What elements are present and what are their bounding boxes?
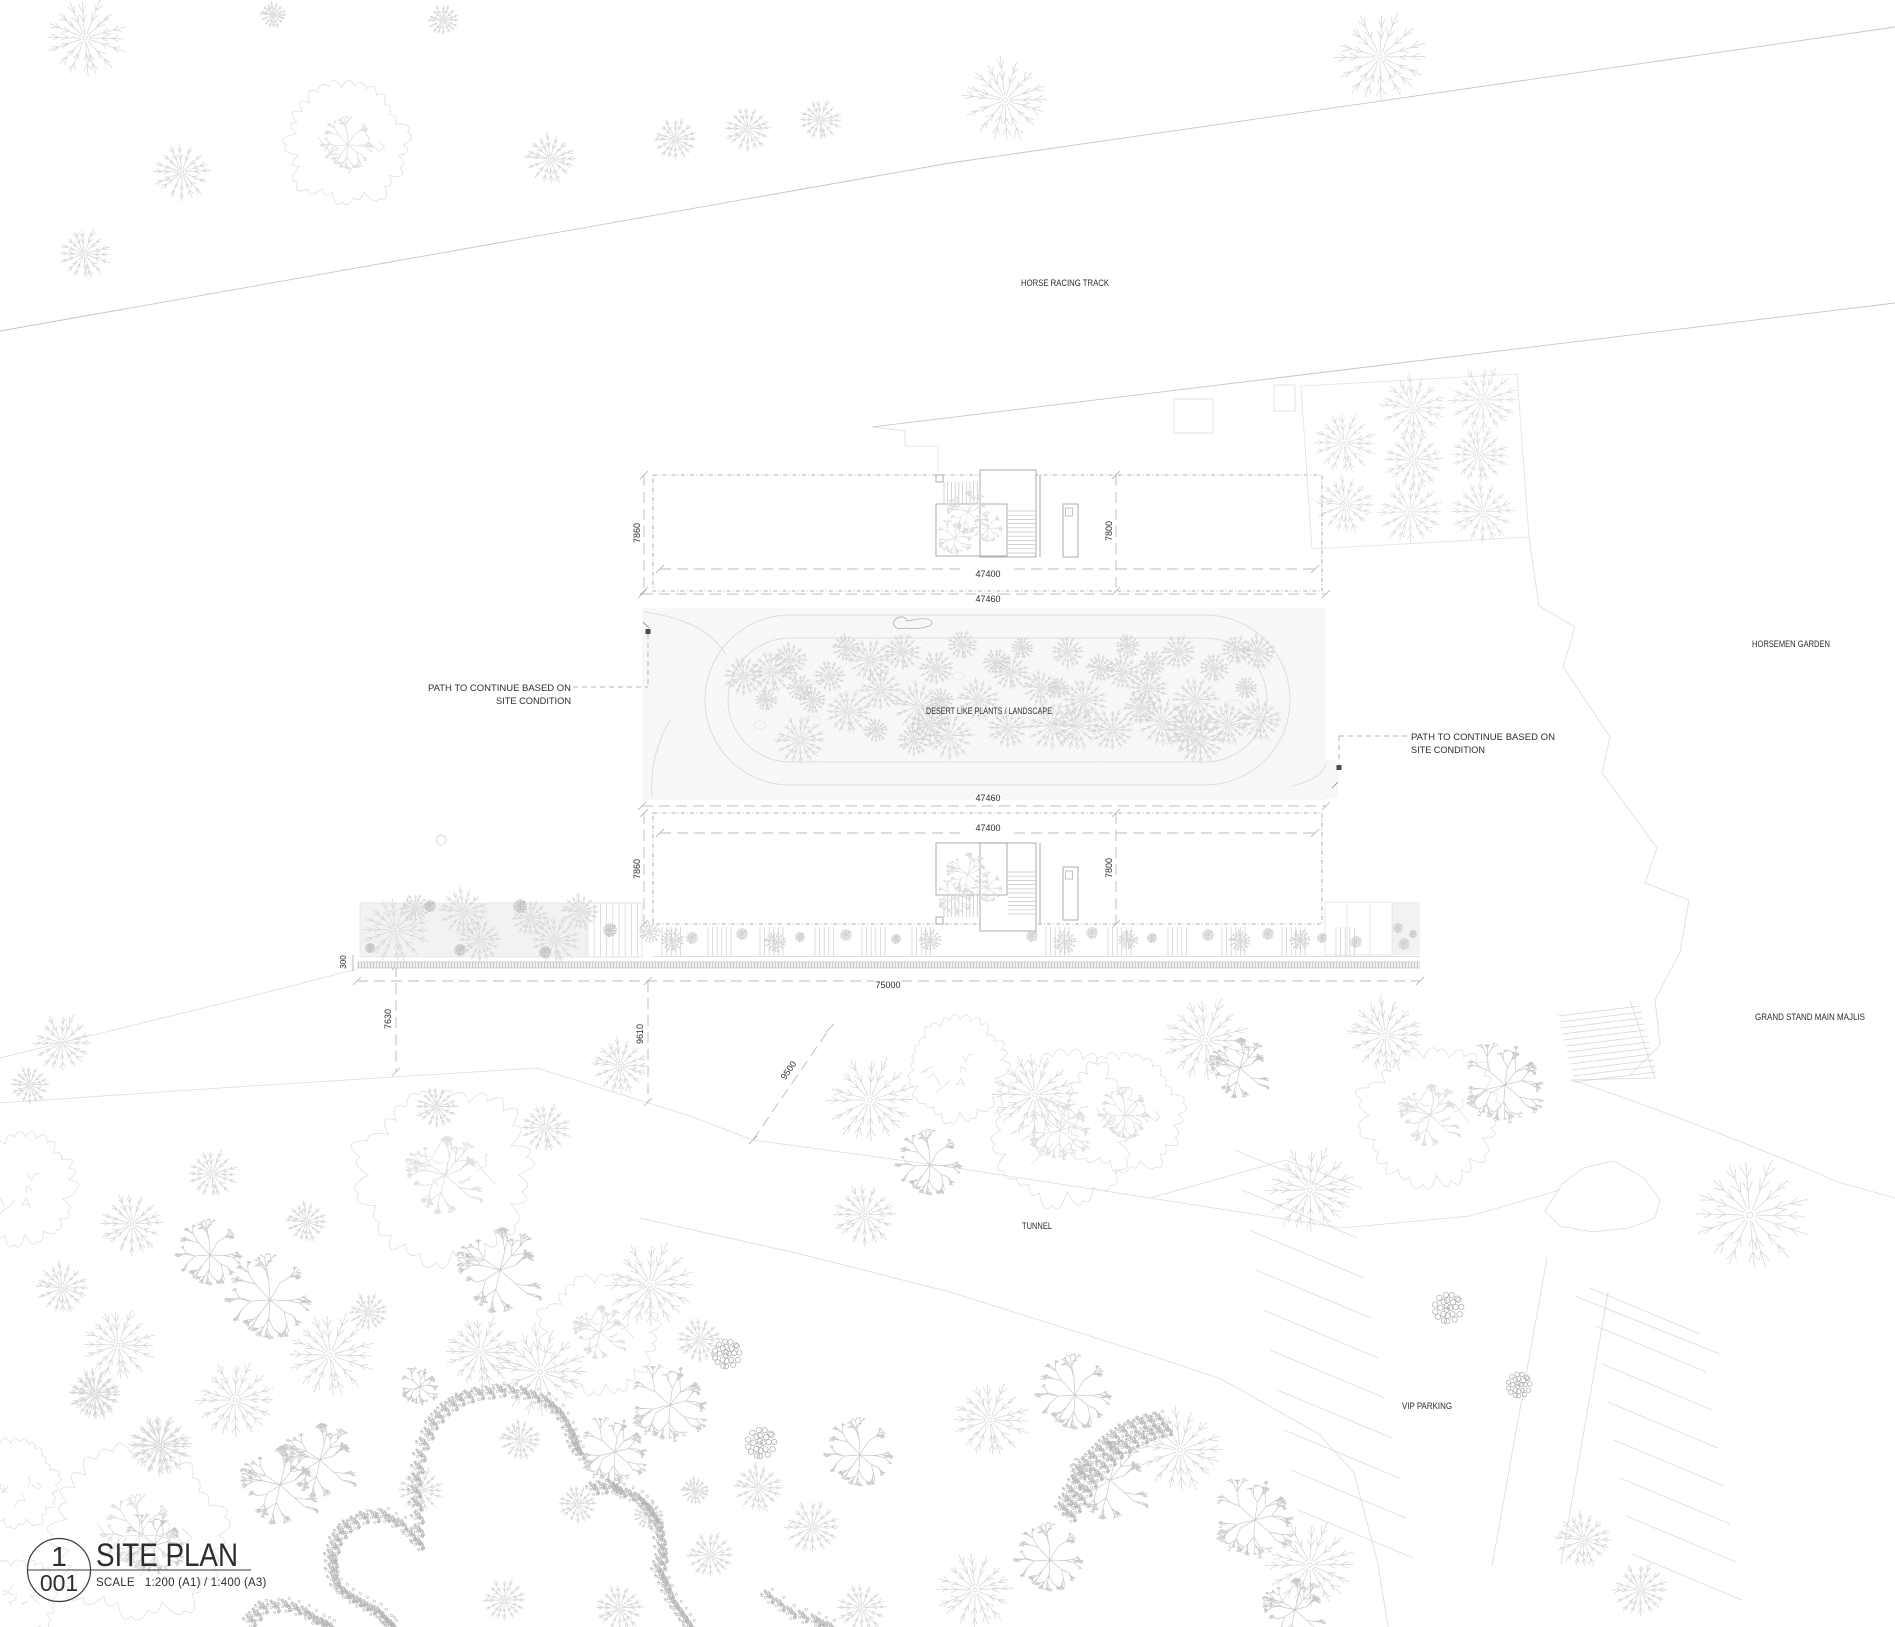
svg-text:7800: 7800 — [1104, 521, 1114, 541]
svg-text:SITE PLAN: SITE PLAN — [96, 1537, 238, 1573]
svg-text:DESERT LIKE PLANTS / LANDSCAPE: DESERT LIKE PLANTS / LANDSCAPE — [926, 706, 1052, 717]
svg-text:SCALE 1:200 (A1) / 1:400 (A3: SCALE 1:200 (A1) / 1:400 (A3) — [96, 1577, 266, 1589]
svg-text:VIP PARKING: VIP PARKING — [1402, 1401, 1452, 1412]
svg-text:9610: 9610 — [635, 1024, 645, 1044]
svg-text:1: 1 — [51, 1541, 67, 1572]
svg-text:SITE CONDITION: SITE CONDITION — [1411, 745, 1485, 756]
svg-text:TUNNEL: TUNNEL — [1022, 1221, 1052, 1232]
svg-text:7860: 7860 — [632, 859, 642, 879]
svg-text:001: 001 — [40, 1570, 78, 1596]
svg-text:HORSE RACING TRACK: HORSE RACING TRACK — [1021, 278, 1110, 289]
svg-text:7800: 7800 — [1104, 858, 1114, 878]
svg-text:300: 300 — [339, 955, 348, 969]
svg-text:7860: 7860 — [632, 523, 642, 543]
svg-text:7630: 7630 — [383, 1009, 393, 1029]
svg-text:75000: 75000 — [875, 980, 900, 990]
svg-text:47400: 47400 — [975, 569, 1000, 579]
svg-text:GRAND STAND MAIN MAJLIS: GRAND STAND MAIN MAJLIS — [1755, 1012, 1865, 1023]
svg-text:47460: 47460 — [975, 594, 1000, 604]
svg-text:PATH TO CONTINUE BASED ON: PATH TO CONTINUE BASED ON — [428, 683, 571, 694]
svg-text:SITE CONDITION: SITE CONDITION — [496, 696, 571, 707]
svg-text:PATH TO CONTINUE BASED ON: PATH TO CONTINUE BASED ON — [1411, 732, 1555, 743]
svg-text:HORSEMEN GARDEN: HORSEMEN GARDEN — [1752, 639, 1830, 650]
svg-text:47460: 47460 — [975, 793, 1000, 803]
svg-text:47400: 47400 — [975, 823, 1000, 833]
